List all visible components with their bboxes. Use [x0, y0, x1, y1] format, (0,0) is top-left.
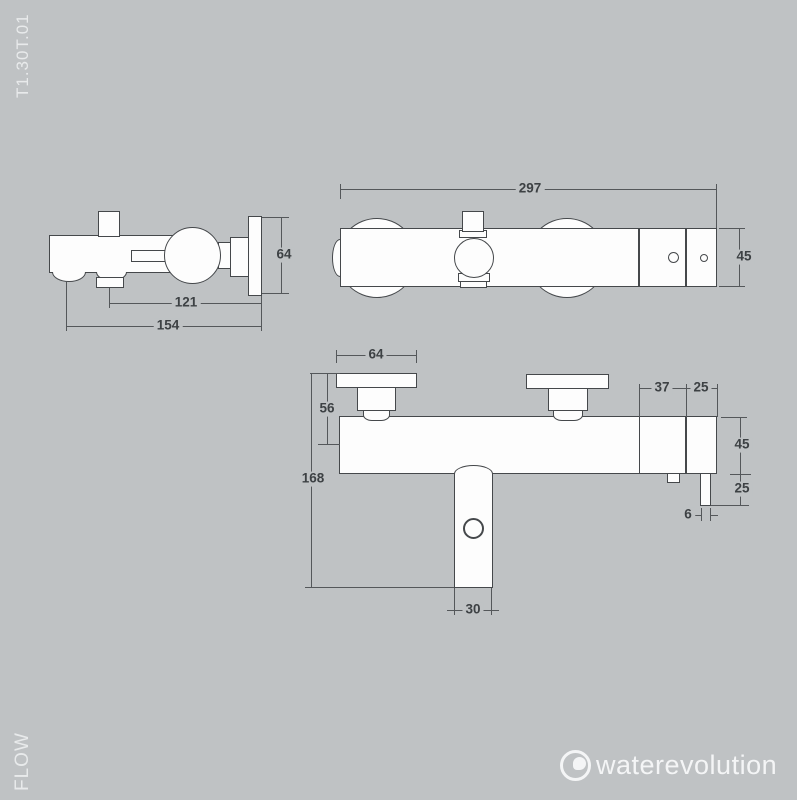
side-spout-bump — [52, 272, 86, 282]
side-diverter-knob — [98, 211, 120, 237]
extension-line — [336, 350, 337, 363]
dim-label-30: 30 — [462, 603, 483, 618]
extension-line — [716, 184, 717, 228]
front-right-escutcheon-collar — [553, 410, 583, 421]
extension-line — [109, 288, 110, 308]
dim-label-121: 121 — [172, 296, 201, 311]
extension-line — [305, 587, 454, 588]
dim-label-25-bottom: 25 — [731, 482, 752, 497]
extension-line — [66, 282, 67, 331]
top-screw-hole-large — [668, 252, 679, 263]
dim-label-45-front: 45 — [731, 438, 752, 453]
dim-label-154: 154 — [154, 319, 183, 334]
dim-label-56: 56 — [316, 402, 337, 417]
dim-label-64-front: 64 — [365, 348, 386, 363]
front-right-escutcheon-body — [548, 388, 588, 411]
side-hose-outlet — [96, 277, 124, 288]
dim-label-64-side: 64 — [273, 248, 294, 263]
droplet-icon — [573, 757, 586, 770]
top-body-bar — [340, 228, 717, 287]
front-body-divider — [685, 417, 687, 473]
dim-tick — [318, 444, 340, 445]
brand-logo: waterevolution — [560, 750, 777, 781]
dim-label-168: 168 — [299, 472, 328, 487]
front-left-escutcheon-body — [357, 387, 396, 411]
brand-name: waterevolution — [596, 750, 777, 781]
dim-line — [694, 515, 701, 516]
dim-label-37: 37 — [651, 381, 672, 396]
side-connector-big — [230, 237, 249, 277]
front-check-valve-nub — [667, 473, 680, 483]
dim-tick — [262, 293, 289, 294]
extension-line — [310, 373, 340, 374]
dim-tick — [719, 286, 745, 287]
top-body-divider — [685, 229, 687, 286]
dim-label-25-top: 25 — [690, 381, 711, 396]
dim-label-45-top: 45 — [733, 250, 754, 265]
extension-line — [340, 184, 341, 199]
top-handle-circle — [454, 238, 494, 278]
front-body-divider — [639, 417, 641, 473]
front-diverter-hole — [463, 518, 484, 539]
front-left-escutcheon-plate — [336, 373, 417, 388]
dim-tick — [721, 417, 747, 418]
top-handle-clamp-narrow — [460, 281, 487, 288]
front-body-bar — [339, 416, 717, 474]
dim-label-6: 6 — [681, 508, 695, 523]
flow-label: FLOW — [12, 732, 34, 791]
dim-tick — [711, 505, 749, 506]
extension-line — [416, 350, 417, 363]
product-code: T1.30T.01 — [13, 13, 33, 98]
top-body-divider — [638, 229, 640, 286]
front-right-escutcheon-plate — [526, 374, 609, 389]
technical-drawing-sheet: 64 121 154 297 45 — [0, 0, 797, 800]
top-diverter-knob — [462, 211, 484, 232]
waterdrop-circle-icon — [560, 750, 591, 781]
dim-tick — [719, 228, 745, 229]
extension-line — [261, 296, 262, 331]
side-handle-ball — [164, 227, 221, 284]
top-screw-hole-small — [700, 254, 708, 262]
dim-label-297: 297 — [516, 182, 545, 197]
front-outlet-pipe — [700, 473, 711, 506]
front-left-escutcheon-collar — [363, 410, 390, 421]
side-wall-plate — [248, 216, 262, 296]
dim-tick — [262, 217, 289, 218]
dim-line — [710, 515, 718, 516]
